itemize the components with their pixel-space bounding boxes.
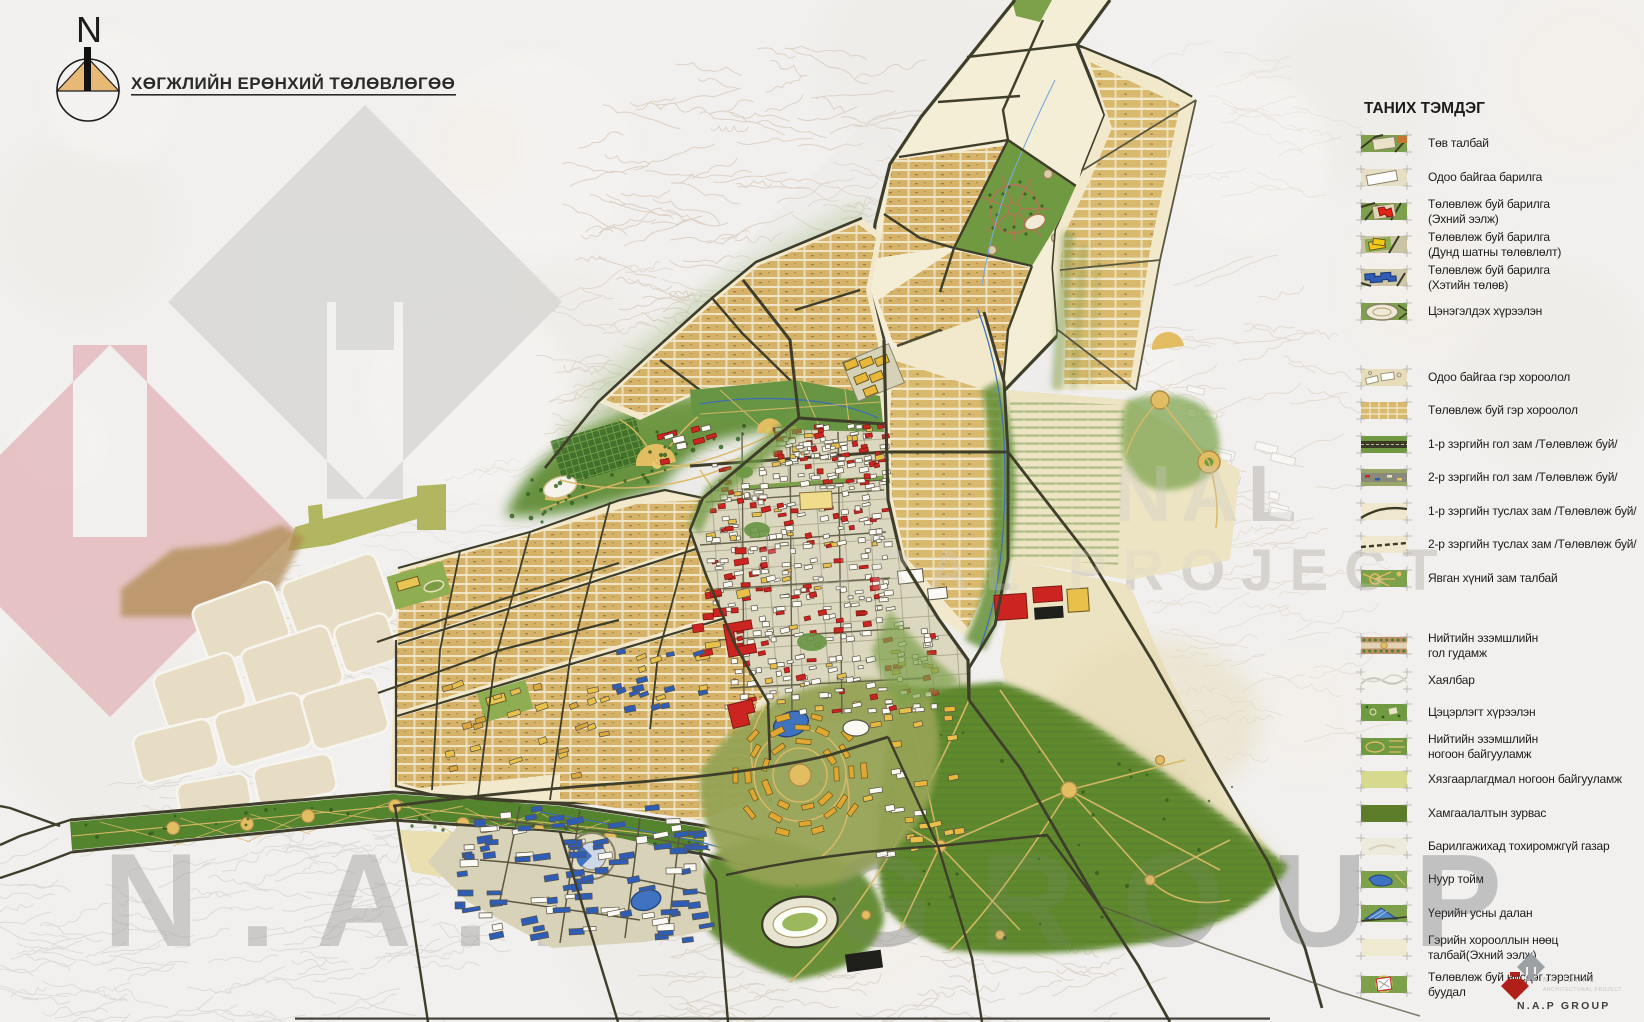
svg-text:Нийтийн эзэмшлийн: Нийтийн эзэмшлийн [1428,732,1538,746]
svg-text:Хамгаалалтын зурвас: Хамгаалалтын зурвас [1428,806,1546,820]
svg-text:Төлөвлөж буй барилга: Төлөвлөж буй барилга [1428,197,1550,211]
svg-text:Хязгаарлагдмал ногоон байгуула: Хязгаарлагдмал ногоон байгууламж [1428,772,1622,786]
svg-text:(Эхний ээлж): (Эхний ээлж) [1428,212,1499,226]
svg-text:Цэнэгэлдэх хүрээлэн: Цэнэгэлдэх хүрээлэн [1428,304,1542,318]
svg-text:Төлөвлөж буй барилга: Төлөвлөж буй барилга [1428,263,1550,277]
svg-text:буудал: буудал [1428,985,1466,999]
svg-text:ногоон байгууламж: ногоон байгууламж [1428,747,1532,761]
svg-text:1-р зэргийн гол зам /Төлөвлөж: 1-р зэргийн гол зам /Төлөвлөж буй/ [1428,437,1618,451]
svg-text:Одоо байгаа барилга: Одоо байгаа барилга [1428,170,1543,184]
svg-text:Хаялбар: Хаялбар [1428,673,1475,687]
svg-text:Одоо байгаа гэр хороолол: Одоо байгаа гэр хороолол [1428,370,1570,384]
svg-text:2-р зэргийн туслах зам /Төлөвл: 2-р зэргийн туслах зам /Төлөвлөж буй/ [1428,537,1637,551]
svg-text:N.A.P GROUP: N.A.P GROUP [1517,1000,1610,1012]
svg-text:Төлөвлөж буй гэр хороолол: Төлөвлөж буй гэр хороолол [1428,403,1578,417]
svg-text:Төлөвлөж буй барилга: Төлөвлөж буй барилга [1428,230,1550,244]
svg-text:1-р зэргийн туслах зам /Төлөвл: 1-р зэргийн туслах зам /Төлөвлөж буй/ [1428,504,1637,518]
svg-text:Нийтийн эзэмшлийн: Нийтийн эзэмшлийн [1428,631,1538,645]
svg-text:NATIONAL: NATIONAL [1543,975,1596,984]
svg-text:Цэцэрлэгт хүрээлэн: Цэцэрлэгт хүрээлэн [1428,705,1535,719]
svg-text:ТАНИХ ТЭМДЭГ: ТАНИХ ТЭМДЭГ [1364,100,1485,117]
svg-text:NAL: NAL [1114,449,1305,538]
svg-text:N: N [76,9,102,50]
svg-text:(Хэтийн төлөв): (Хэтийн төлөв) [1428,278,1508,292]
svg-text:ARCHITECTURAL PROJECT: ARCHITECTURAL PROJECT [1543,987,1622,993]
svg-text:гол гудамж: гол гудамж [1428,646,1487,660]
svg-text:(Дунд шатны төлөвлөлт): (Дунд шатны төлөвлөлт) [1428,245,1561,259]
svg-text:2-р зэргийн гол зам /Төлөвлөж: 2-р зэргийн гол зам /Төлөвлөж буй/ [1428,470,1618,484]
svg-text:Төв талбай: Төв талбай [1428,136,1489,150]
svg-text:TURAL PROJECT: TURAL PROJECT [760,538,1454,603]
svg-text:GROUP: GROUP [830,827,1549,974]
svg-text:ХӨГЖЛИЙН ЕРӨНХИЙ ТӨЛӨВЛӨГӨӨ: ХӨГЖЛИЙН ЕРӨНХИЙ ТӨЛӨВЛӨГӨӨ [131,74,455,93]
